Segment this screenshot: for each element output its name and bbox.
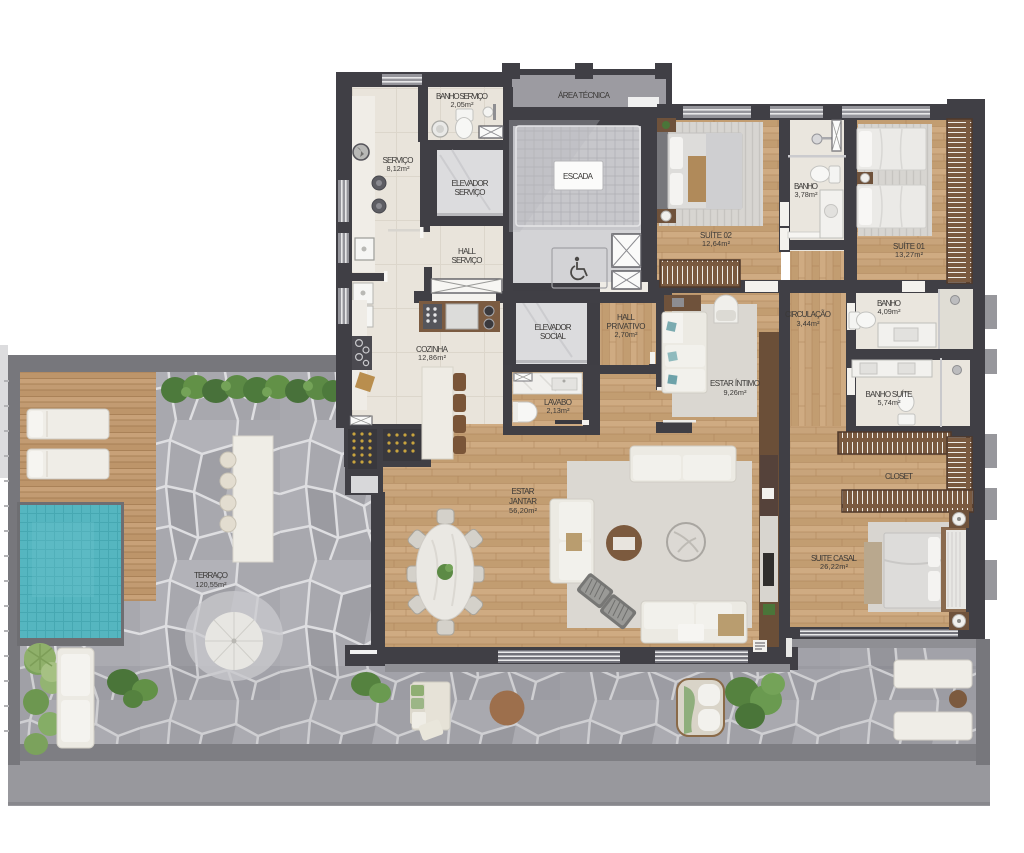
svg-text:2,05m²: 2,05m²	[451, 100, 475, 109]
svg-text:56,20m²: 56,20m²	[509, 506, 538, 515]
svg-text:12,64m²: 12,64m²	[702, 239, 731, 248]
svg-text:2,13m²: 2,13m²	[547, 406, 571, 415]
svg-text:ELEVADOR: ELEVADOR	[452, 179, 489, 188]
svg-text:HALL: HALL	[458, 247, 477, 256]
svg-text:TERRAÇO: TERRAÇO	[194, 571, 228, 580]
svg-text:CLOSET: CLOSET	[885, 472, 913, 481]
svg-text:13,27m²: 13,27m²	[895, 250, 924, 259]
svg-text:12,86m²: 12,86m²	[418, 353, 447, 362]
svg-text:5,74m²: 5,74m²	[878, 398, 902, 407]
svg-text:26,22m²: 26,22m²	[820, 562, 849, 571]
svg-text:ÁREA TÉCNICA: ÁREA TÉCNICA	[558, 91, 611, 100]
svg-text:HALL: HALL	[617, 313, 636, 322]
svg-text:SERVIÇO: SERVIÇO	[452, 256, 483, 265]
svg-text:ELEVADOR: ELEVADOR	[535, 323, 572, 332]
svg-text:9,26m²: 9,26m²	[724, 388, 748, 397]
svg-text:CIRCULAÇÃO: CIRCULAÇÃO	[785, 310, 831, 319]
svg-text:ESTAR ÍNTIMO: ESTAR ÍNTIMO	[710, 379, 760, 388]
svg-text:3,78m²: 3,78m²	[795, 190, 819, 199]
svg-text:120,55m²: 120,55m²	[196, 580, 228, 589]
svg-text:ESCADA: ESCADA	[563, 172, 594, 181]
svg-text:SOCIAL: SOCIAL	[540, 332, 567, 341]
svg-text:SERVIÇO: SERVIÇO	[455, 188, 486, 197]
svg-text:2,70m²: 2,70m²	[615, 330, 639, 339]
svg-text:3,44m²: 3,44m²	[797, 319, 821, 328]
svg-text:4,09m²: 4,09m²	[878, 307, 902, 316]
svg-text:JANTAR: JANTAR	[509, 497, 537, 506]
svg-text:8,12m²: 8,12m²	[387, 164, 411, 173]
svg-text:ESTAR: ESTAR	[512, 487, 535, 496]
